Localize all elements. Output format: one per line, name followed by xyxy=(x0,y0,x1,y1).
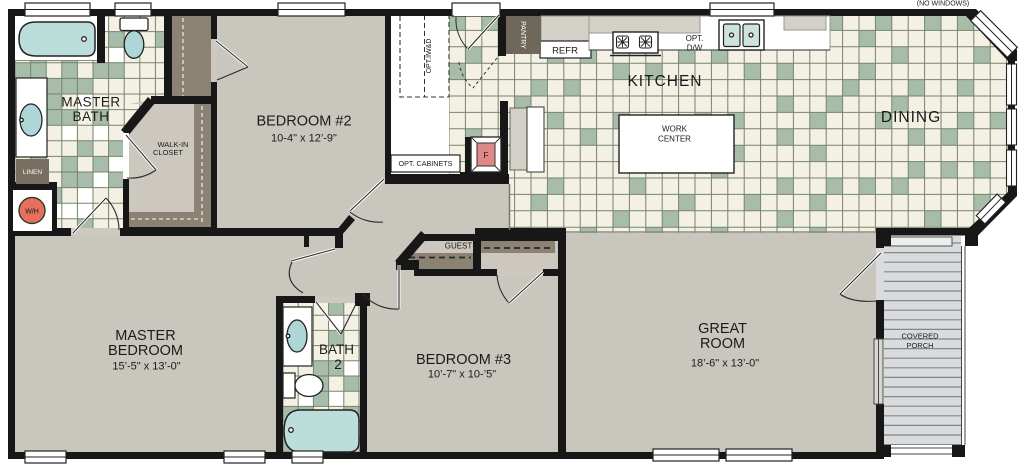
svg-text:10-4" x 12’-9": 10-4" x 12’-9" xyxy=(271,133,337,145)
svg-text:MASTER: MASTER xyxy=(115,328,175,344)
svg-text:REFR: REFR xyxy=(552,46,578,57)
svg-text:WORK: WORK xyxy=(662,125,688,134)
svg-text:D/W: D/W xyxy=(687,44,703,53)
svg-text:GREAT: GREAT xyxy=(698,321,747,337)
svg-text:DINING: DINING xyxy=(881,109,941,126)
svg-text:MASTER: MASTER xyxy=(61,95,120,110)
svg-text:BEDROOM: BEDROOM xyxy=(108,343,183,359)
svg-text:18’-6" x 13’-0": 18’-6" x 13’-0" xyxy=(691,358,759,370)
svg-text:CLOSET: CLOSET xyxy=(153,148,183,157)
svg-text:GUEST: GUEST xyxy=(445,242,473,251)
svg-text:PANTRY: PANTRY xyxy=(519,21,526,49)
svg-text:OPT.‖W&D: OPT.‖W&D xyxy=(426,39,433,74)
svg-text:(NO WINDOWS): (NO WINDOWS) xyxy=(917,1,970,8)
svg-text:KITCHEN: KITCHEN xyxy=(627,73,702,90)
svg-text:BEDROOM #2: BEDROOM #2 xyxy=(256,114,351,130)
svg-text:15’-5" x 13’-0": 15’-5" x 13’-0" xyxy=(112,361,180,373)
svg-text:F: F xyxy=(483,150,488,160)
svg-text:CENTER: CENTER xyxy=(658,135,691,144)
svg-text:BATH: BATH xyxy=(72,109,109,124)
svg-text:OPT.: OPT. xyxy=(686,34,704,43)
svg-text:2: 2 xyxy=(334,357,342,372)
svg-text:ROOM: ROOM xyxy=(700,336,745,352)
svg-text:W/H: W/H xyxy=(25,209,39,216)
svg-text:OPT. CABINETS: OPT. CABINETS xyxy=(399,159,453,168)
svg-text:BEDROOM #3: BEDROOM #3 xyxy=(416,352,511,368)
svg-text:PORCH: PORCH xyxy=(906,341,933,350)
svg-text:10’-7" x 10-’5": 10’-7" x 10-’5" xyxy=(428,369,496,381)
svg-text:BATH: BATH xyxy=(319,342,354,357)
svg-text:LINEN: LINEN xyxy=(23,169,42,176)
svg-text:COVERED: COVERED xyxy=(901,332,939,341)
